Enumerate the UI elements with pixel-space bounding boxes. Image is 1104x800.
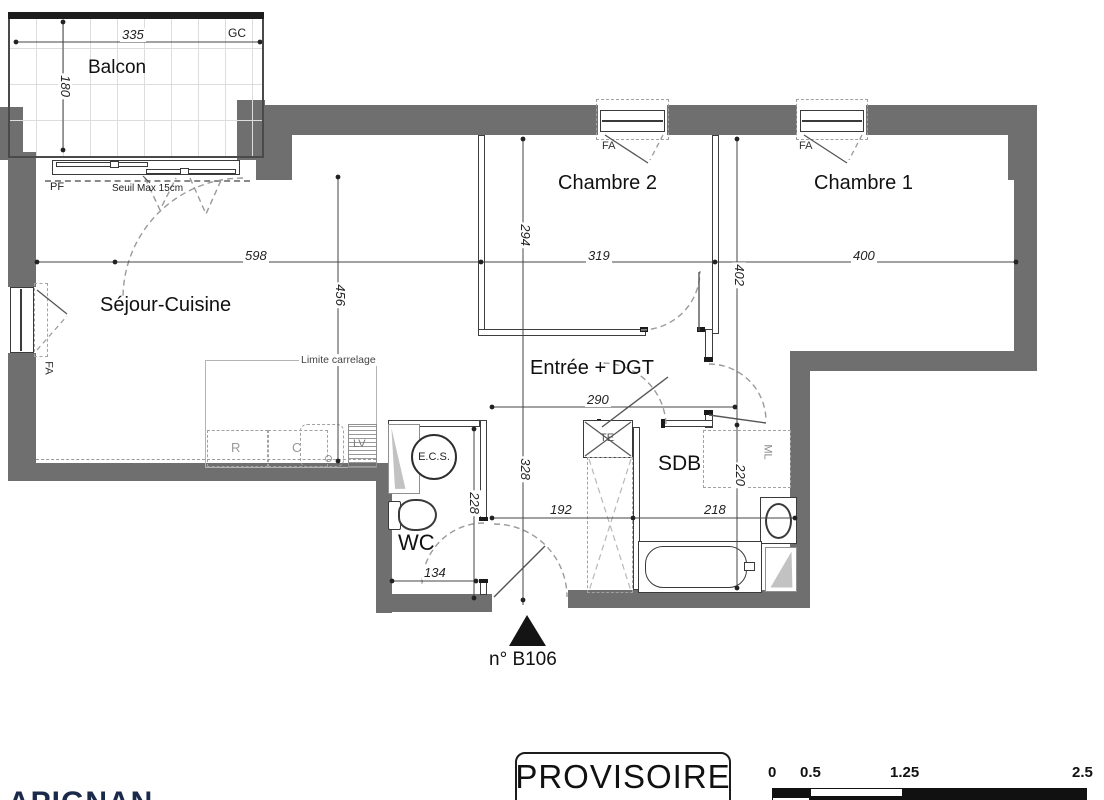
dim-294: 294	[518, 222, 532, 248]
scale-label-05: 0.5	[800, 764, 821, 781]
chambre1-door-leaf	[709, 415, 766, 423]
dim-400: 400	[851, 249, 877, 263]
wall-sejour-chambre2	[478, 135, 485, 334]
dim-328: 328	[518, 456, 532, 482]
jamb-cap	[697, 327, 705, 332]
wall-entree-chambre2	[478, 329, 646, 336]
jamb-cap	[479, 517, 488, 521]
room-label-chambre2: Chambre 2	[558, 172, 657, 195]
fa-window-sejour-frame	[10, 287, 34, 353]
dim-319: 319	[586, 249, 612, 263]
ml-label: ML	[762, 444, 774, 459]
left-wall-upper	[8, 152, 36, 287]
left-wall-lower	[8, 353, 36, 481]
wall-sdb-top-seg2	[663, 420, 713, 427]
cabinet-wedge	[766, 548, 796, 591]
right-wall	[1014, 135, 1037, 371]
fa-label-ch2: FA	[602, 140, 615, 152]
scale-bar: 0 0.5 1.25 2.5	[760, 764, 1100, 800]
chambre1-door-arc	[709, 364, 766, 421]
wall-chambre2-chambre1	[712, 135, 719, 334]
dim-192: 192	[548, 503, 574, 517]
footer-project-name: APIGNAN	[8, 786, 153, 800]
seuil-label: Seuil Max 15cm	[112, 183, 183, 194]
jamb-cap	[661, 419, 665, 428]
dim-456: 456	[333, 282, 347, 308]
wc-bottom-wall	[376, 594, 492, 612]
dim-180: 180	[58, 73, 72, 99]
jamb-cap	[704, 410, 713, 415]
kitchen-sink	[300, 424, 344, 467]
fa-label-ch1: FA	[799, 140, 812, 152]
toilet-bowl	[398, 499, 437, 531]
scale-label-125: 1.25	[890, 764, 919, 781]
dim-402: 402	[732, 262, 746, 288]
room-label-chambre1: Chambre 1	[814, 172, 913, 195]
pf-door-panel-1	[56, 162, 148, 167]
jamb-cap	[704, 357, 713, 362]
scale-bar-row1-seg1	[772, 788, 810, 797]
fa-window-sejour-sill	[34, 283, 48, 357]
sdb-cabinet	[765, 547, 797, 592]
kitchen-r-label: R	[231, 440, 240, 455]
te-label: TE	[600, 432, 614, 444]
kitchen-c-label: C	[292, 440, 301, 455]
pf-swing-chevron-2	[190, 178, 222, 214]
pf-door-arc	[123, 178, 243, 298]
gc-label: GC	[228, 26, 246, 40]
bathtub-inner	[645, 546, 747, 588]
entry-door-arc	[494, 524, 567, 597]
top-wall-seg2	[667, 105, 797, 135]
pf-door-panel-2	[146, 169, 236, 174]
dim-335: 335	[120, 28, 146, 42]
provisoire-stamp-text: PROVISOIRE	[515, 758, 730, 796]
chambre1-bottom-wall	[797, 351, 1037, 371]
pf-door-handle-2	[180, 168, 189, 175]
room-label-balcon: Balcon	[88, 57, 146, 79]
fa-window-sejour-rail	[20, 289, 22, 351]
ecs-water-heater: E.C.S.	[411, 434, 457, 480]
pf-label: PF	[50, 181, 64, 193]
scale-bar-row1-seg2	[810, 788, 903, 797]
carrelage-dashed-line	[36, 459, 376, 460]
pf-door-handle-1	[110, 161, 119, 168]
scale-label-0: 0	[768, 764, 776, 781]
dim-220: 220	[733, 462, 747, 488]
limite-carrelage-label: Limite carrelage	[299, 354, 378, 366]
room-label-sejour: Séjour-Cuisine	[100, 294, 231, 317]
room-label-entree: Entrée + DGT	[530, 357, 654, 380]
dim-134: 134	[422, 566, 448, 580]
kitchen-lv-label: LV	[353, 438, 366, 450]
placard-box	[587, 457, 633, 593]
floor-plan: E.C.S.	[0, 0, 1104, 800]
fa-window-ch2-rail	[602, 120, 663, 122]
wall-wc-right-lower	[480, 582, 487, 595]
entry-door-leaf	[494, 546, 545, 597]
sdb-washbasin	[765, 503, 792, 539]
dim-228: 228	[467, 490, 481, 516]
ecs-label: E.C.S.	[418, 451, 450, 463]
fa-label-sejour: FA	[43, 361, 55, 374]
fa-window-ch1-rail	[802, 120, 862, 122]
chambre2-door-arc	[641, 271, 700, 330]
bathtub-faucet	[744, 562, 755, 571]
dim-290: 290	[585, 393, 611, 407]
room-label-sdb: SDB	[658, 452, 701, 476]
balcony-guardrail	[8, 12, 264, 19]
scale-bar-row1-seg3	[903, 788, 1087, 797]
dim-218: 218	[702, 503, 728, 517]
seuil-dashed-line	[45, 180, 250, 182]
jamb-cap	[479, 579, 488, 583]
top-wall-seg1	[256, 105, 598, 135]
room-label-wc: WC	[398, 530, 435, 556]
jamb-cap	[640, 327, 648, 332]
dim-598: 598	[243, 249, 269, 263]
unit-number-label: n° B106	[489, 649, 557, 671]
provisoire-stamp: PROVISOIRE	[515, 752, 731, 800]
scale-label-25: 2.5	[1072, 764, 1093, 781]
entrance-arrow	[509, 615, 546, 646]
